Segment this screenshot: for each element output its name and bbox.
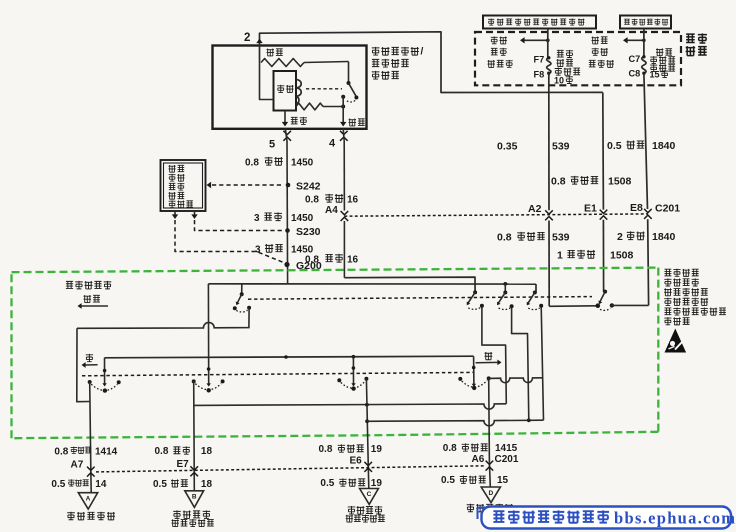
svg-text:15: 15 bbox=[497, 475, 509, 486]
svg-text:1: 1 bbox=[557, 250, 563, 262]
svg-text:E8: E8 bbox=[630, 202, 643, 214]
svg-text:14: 14 bbox=[95, 479, 107, 490]
svg-text:1414: 1414 bbox=[95, 446, 118, 457]
svg-text:3: 3 bbox=[254, 213, 260, 224]
svg-text:C7: C7 bbox=[629, 54, 641, 64]
svg-text:E6: E6 bbox=[350, 455, 363, 466]
svg-text:0.5: 0.5 bbox=[153, 479, 167, 490]
svg-text:0.5: 0.5 bbox=[51, 479, 65, 490]
svg-text:4: 4 bbox=[329, 138, 336, 150]
svg-text:/: / bbox=[421, 47, 424, 58]
svg-text:F7: F7 bbox=[534, 55, 545, 65]
svg-text:0.8: 0.8 bbox=[305, 255, 319, 266]
svg-text:S242: S242 bbox=[296, 181, 321, 193]
svg-text:0.8: 0.8 bbox=[305, 195, 319, 206]
svg-text:539: 539 bbox=[552, 232, 570, 244]
svg-text:5: 5 bbox=[269, 139, 275, 151]
svg-text:1450: 1450 bbox=[291, 158, 314, 169]
svg-text:19: 19 bbox=[371, 478, 383, 489]
svg-text:18: 18 bbox=[201, 446, 213, 457]
svg-text:0.5: 0.5 bbox=[320, 478, 334, 489]
svg-text:E7: E7 bbox=[177, 459, 190, 470]
svg-text:0.8: 0.8 bbox=[245, 158, 259, 169]
svg-text:A7: A7 bbox=[71, 459, 84, 470]
svg-text:2: 2 bbox=[244, 32, 250, 44]
svg-text:0.8: 0.8 bbox=[319, 444, 333, 455]
svg-text:10: 10 bbox=[554, 76, 564, 86]
svg-text:A2: A2 bbox=[528, 203, 542, 215]
svg-text:1840: 1840 bbox=[652, 231, 676, 243]
svg-text:15: 15 bbox=[650, 70, 660, 80]
svg-text:0.35: 0.35 bbox=[497, 141, 518, 153]
svg-text:0.8: 0.8 bbox=[551, 176, 566, 188]
svg-text:0.8: 0.8 bbox=[155, 446, 169, 457]
svg-text:0.8: 0.8 bbox=[443, 443, 457, 454]
svg-text:C201: C201 bbox=[495, 454, 519, 465]
svg-text:A: A bbox=[86, 496, 91, 503]
svg-text:C8: C8 bbox=[629, 69, 641, 79]
svg-text:1508: 1508 bbox=[610, 250, 634, 262]
svg-text:E1: E1 bbox=[584, 203, 597, 215]
svg-text:C201: C201 bbox=[655, 203, 680, 215]
svg-text:16: 16 bbox=[347, 195, 359, 206]
svg-text:16: 16 bbox=[347, 255, 359, 266]
svg-text:0.5: 0.5 bbox=[441, 475, 455, 486]
svg-text:1840: 1840 bbox=[652, 140, 676, 152]
svg-text:0.8: 0.8 bbox=[497, 232, 512, 244]
svg-text:S230: S230 bbox=[296, 226, 321, 238]
svg-text:1415: 1415 bbox=[495, 443, 518, 454]
svg-text:1508: 1508 bbox=[608, 176, 632, 188]
svg-text:2: 2 bbox=[617, 231, 623, 243]
svg-text:bbs.ephua.com: bbs.ephua.com bbox=[614, 509, 736, 528]
svg-text:18: 18 bbox=[201, 479, 213, 490]
svg-text:539: 539 bbox=[552, 141, 570, 153]
svg-text:B: B bbox=[192, 494, 197, 501]
svg-text:D: D bbox=[488, 490, 493, 497]
svg-text:F8: F8 bbox=[534, 70, 545, 80]
svg-text:0.5: 0.5 bbox=[607, 140, 622, 152]
svg-text:0.8: 0.8 bbox=[54, 446, 68, 457]
svg-text:C: C bbox=[367, 491, 372, 498]
svg-text:A6: A6 bbox=[472, 454, 485, 465]
svg-text:A4: A4 bbox=[325, 205, 338, 216]
svg-text:3: 3 bbox=[255, 245, 261, 256]
svg-text:1450: 1450 bbox=[291, 213, 314, 224]
svg-text:19: 19 bbox=[371, 444, 383, 455]
